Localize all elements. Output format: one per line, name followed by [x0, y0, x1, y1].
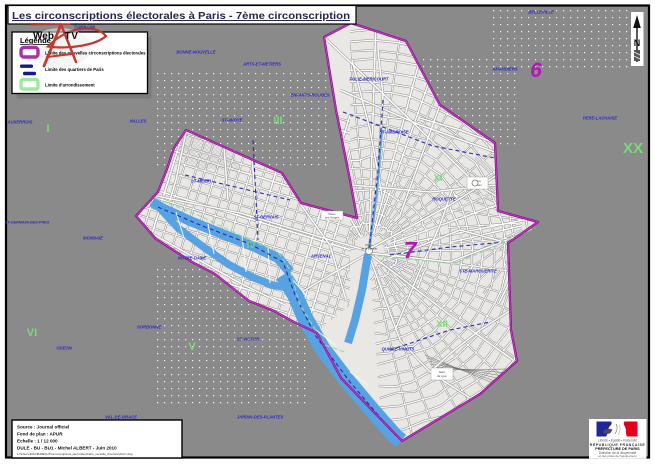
svg-text:6: 6 [530, 59, 542, 82]
svg-text:Liberté • Égalité • Fraternité: Liberté • Égalité • Fraternité [598, 438, 637, 443]
svg-text:NOTRE-DAME: NOTRE-DAME [178, 256, 207, 261]
svg-text:STE-MARGUERITE: STE-MARGUERITE [459, 269, 497, 274]
svg-text:Web: Web [33, 31, 54, 42]
svg-text:ST-AVOYE: ST-AVOYE [222, 118, 243, 123]
svg-text:ROQUETTE: ROQUETTE [432, 197, 455, 202]
svg-text:L:\fichiers\2010\BUREAUX\Circo: L:\fichiers\2010\BUREAUX\Circonscription… [17, 452, 133, 456]
svg-text:ST-GERVAIS: ST-GERVAIS [253, 215, 278, 220]
svg-text:Limite des quartiers de Paris: Limite des quartiers de Paris [45, 67, 104, 72]
svg-text:AMANDIERS: AMANDIERS [491, 67, 518, 72]
svg-text:de la Bastille: de la Bastille [361, 246, 377, 250]
svg-text:JARDIN-DES-PLANTES: JARDIN-DES-PLANTES [237, 415, 284, 420]
svg-text:MONNAIE: MONNAIE [83, 236, 103, 241]
svg-text:ST-GERMAIN-DES-PRES: ST-GERMAIN-DES-PRES [5, 221, 50, 225]
svg-text:FOLIE-MERICOURT: FOLIE-MERICOURT [349, 77, 388, 82]
svg-text:ST-MERRI: ST-MERRI [191, 179, 212, 184]
svg-text:de Lyon: de Lyon [437, 374, 447, 378]
svg-text:XX: XX [623, 140, 643, 157]
svg-text:ARSENAL: ARSENAL [310, 254, 332, 259]
svg-text:Fond de plan : APUR: Fond de plan : APUR [17, 432, 63, 437]
svg-text:QUINZE-VINGTS: QUINZE-VINGTS [382, 347, 415, 352]
svg-text:BONNE-NOUVELLE: BONNE-NOUVELLE [176, 50, 216, 55]
svg-text:ARTS-ET-METIERS: ARTS-ET-METIERS [242, 62, 281, 67]
svg-text:XI: XI [434, 173, 443, 184]
svg-text:ENFANTS-ROUGES: ENFANTS-ROUGES [290, 93, 329, 98]
svg-text:AUXERROIS: AUXERROIS [7, 120, 33, 125]
svg-text:HALLES: HALLES [130, 119, 147, 124]
svg-text:TV: TV [65, 31, 79, 42]
svg-text:Source : Journal officiel: Source : Journal officiel [17, 425, 69, 430]
svg-text:Limite d'arrondissement: Limite d'arrondissement [45, 83, 95, 88]
svg-text:TVWEB.COM: TVWEB.COM [74, 25, 95, 29]
svg-text:BELLEVILLE: BELLEVILLE [528, 10, 554, 15]
svg-text:7: 7 [404, 237, 418, 263]
svg-text:PERE-LACHAISE: PERE-LACHAISE [583, 116, 617, 121]
svg-text:ST-VICTOR: ST-VICTOR [237, 337, 259, 342]
svg-text:Les circonscriptions électoral: Les circonscriptions électorales à Paris… [12, 10, 350, 22]
svg-text:ODEON: ODEON [56, 346, 72, 351]
svg-text:DULE - BU - BU1 - Michel ALBER: DULE - BU - BU1 - Michel ALBERT - Juin 2… [17, 446, 117, 451]
svg-text:XII: XII [436, 319, 448, 330]
svg-text:VAL-DE-GRACE: VAL-DE-GRACE [105, 415, 137, 420]
svg-text:et des pôles de l'équipement: et des pôles de l'équipement [598, 454, 636, 458]
svg-text:SORBONNE: SORBONNE [137, 325, 161, 330]
svg-text:IV: IV [247, 240, 256, 250]
svg-text:V: V [188, 341, 196, 353]
svg-text:I: I [46, 123, 49, 135]
svg-text:Echelle : 1 / 12 000: Echelle : 1 / 12 000 [17, 439, 58, 444]
svg-text:VI: VI [27, 327, 37, 339]
svg-text:ST-AMBROISE: ST-AMBROISE [379, 130, 408, 135]
svg-text:des Vosges: des Vosges [325, 216, 340, 220]
svg-text:III: III [273, 115, 282, 127]
svg-text:N: N [634, 38, 641, 48]
